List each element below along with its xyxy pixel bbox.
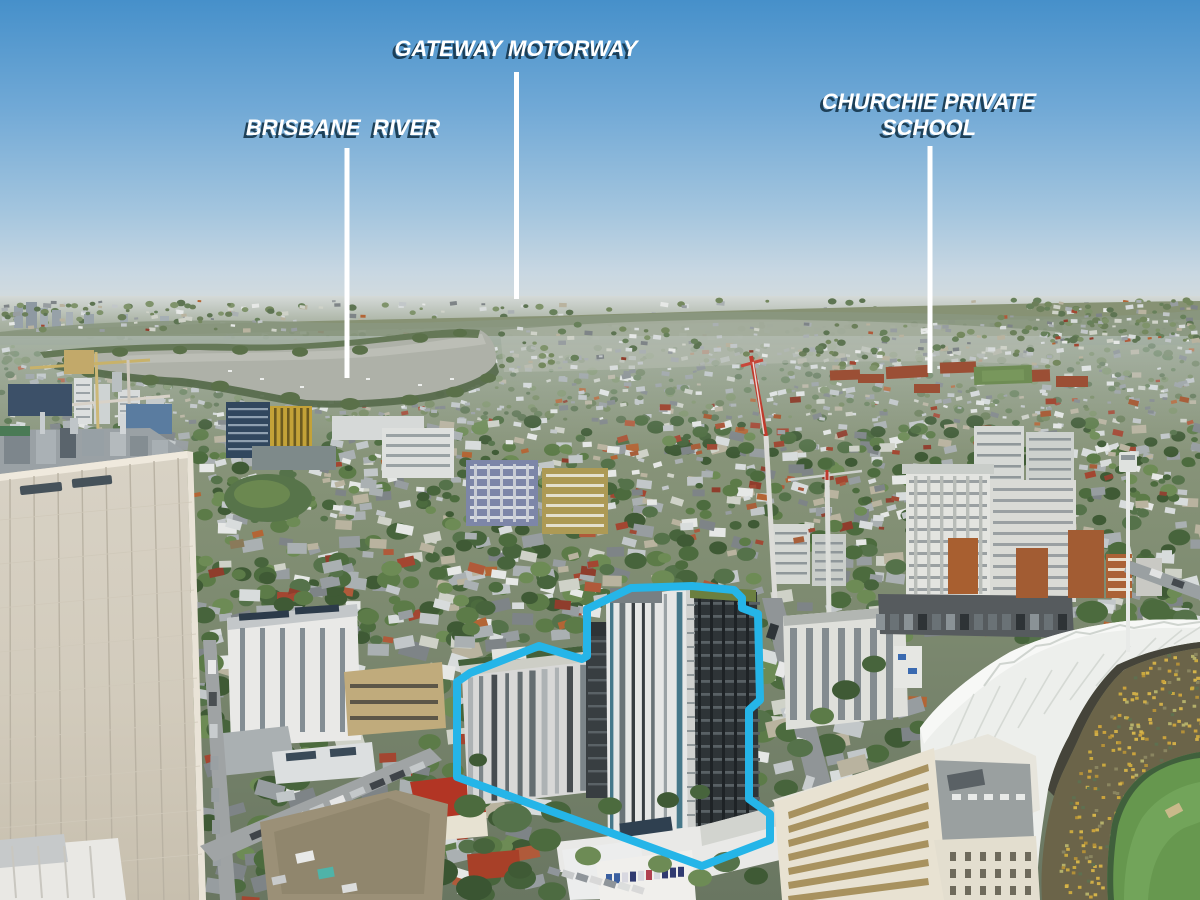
svg-text:SCHOOL: SCHOOL bbox=[882, 115, 976, 140]
svg-text:CHURCHIE PRIVATE: CHURCHIE PRIVATE bbox=[822, 89, 1038, 114]
svg-text:GATEWAY MOTORWAY: GATEWAY MOTORWAY bbox=[394, 36, 640, 61]
svg-text:BRISBANE RIVER: BRISBANE RIVER bbox=[246, 115, 440, 140]
